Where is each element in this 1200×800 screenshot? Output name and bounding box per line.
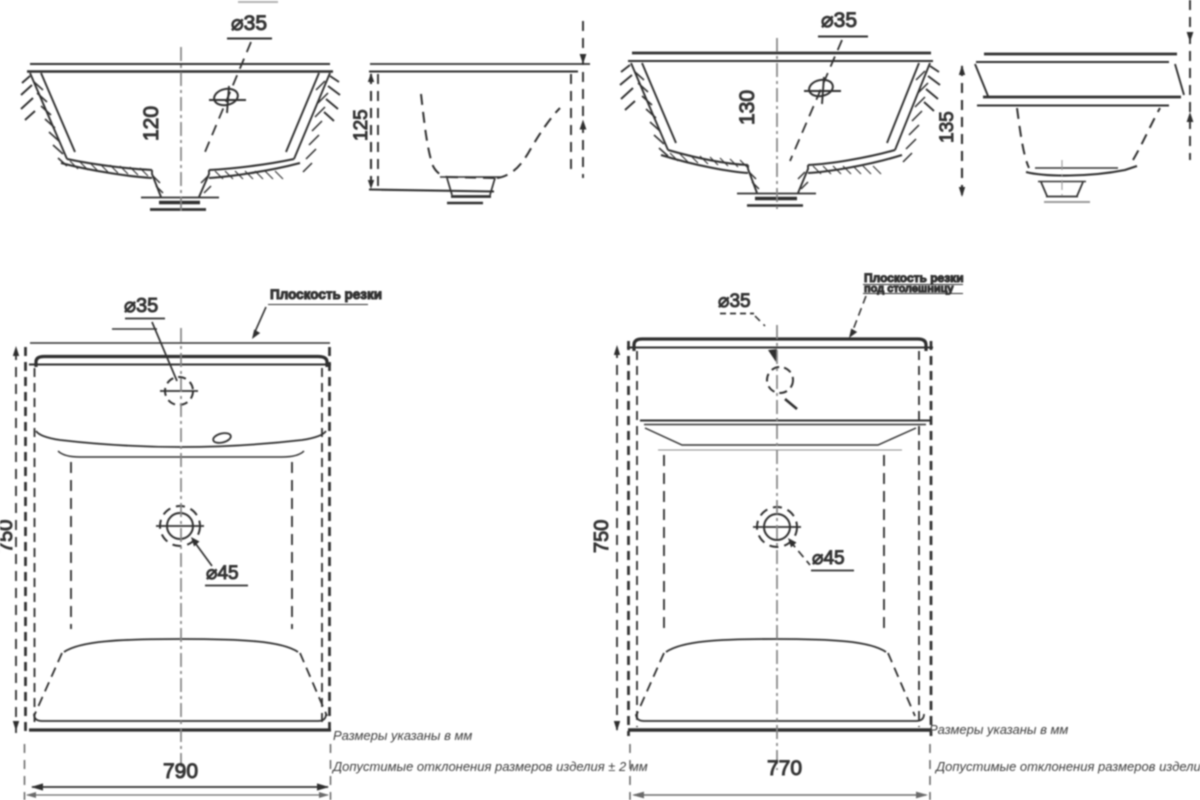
- svg-text:Допустимые отклонения размеров: Допустимые отклонения размеров изделия ±…: [331, 759, 648, 774]
- svg-text:130: 130: [736, 90, 759, 125]
- svg-text:⌀35: ⌀35: [821, 9, 857, 32]
- svg-text:750: 750: [0, 520, 17, 553]
- svg-text:⌀35: ⌀35: [718, 291, 751, 312]
- svg-text:Размеры указаны в мм: Размеры указаны в мм: [929, 722, 1068, 737]
- svg-text:790: 790: [163, 760, 198, 783]
- svg-text:125: 125: [351, 109, 372, 141]
- svg-text:770: 770: [767, 757, 802, 780]
- svg-text:⌀35: ⌀35: [231, 12, 267, 35]
- svg-text:⌀35: ⌀35: [124, 295, 158, 317]
- svg-text:750: 750: [591, 520, 613, 553]
- svg-text:⌀45: ⌀45: [812, 548, 845, 569]
- svg-text:Допустимые отклонения размеров: Допустимые отклонения размеров изделия ±…: [934, 759, 1200, 774]
- svg-text:135: 135: [937, 111, 958, 143]
- svg-text:Размеры указаны в мм: Размеры указаны в мм: [333, 728, 472, 743]
- svg-text:Плоскость резки: Плоскость резки: [270, 287, 382, 302]
- svg-text:⌀45: ⌀45: [206, 563, 239, 584]
- svg-text:120: 120: [140, 106, 163, 141]
